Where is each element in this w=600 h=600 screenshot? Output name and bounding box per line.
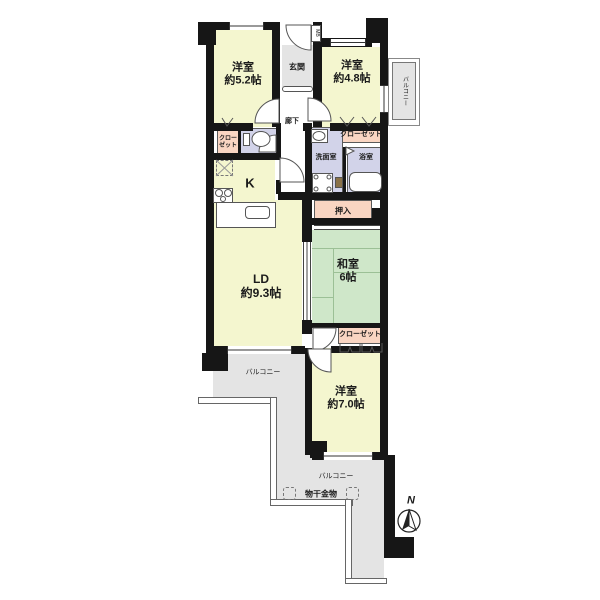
room-name: LD [241, 273, 282, 287]
sliding-door-oshiire [314, 225, 380, 230]
wall [213, 123, 253, 131]
genkan-label: 玄関 [289, 62, 305, 71]
wall [343, 147, 346, 196]
wall [305, 323, 388, 328]
wall [330, 123, 388, 131]
closet-lower-label: クローゼット [339, 331, 381, 339]
stove [213, 188, 233, 203]
window [229, 22, 264, 30]
washroom-label: 洗面室 [316, 154, 337, 162]
room-size: 約9.3帖 [241, 287, 282, 301]
wall [272, 22, 280, 127]
window [227, 346, 292, 354]
closet-left-label: クローゼット [218, 136, 238, 150]
laundry-label: 物干金物 [305, 489, 337, 498]
ld-label: LD 約9.3帖 [241, 273, 282, 301]
room-size: 約4.8帖 [333, 72, 370, 85]
tatami-line [312, 297, 333, 298]
room-name: 和室 [337, 258, 359, 271]
hallway-label: 廊下 [285, 118, 299, 126]
balcony-railing [270, 397, 277, 501]
bathroom-label: 浴室 [359, 154, 373, 162]
balcony-left-strip [277, 398, 305, 458]
compass-label: N [407, 495, 415, 508]
room-size: 6帖 [337, 271, 359, 284]
wall [308, 192, 388, 200]
balcony-railing [198, 397, 277, 404]
toilet-tank [243, 133, 250, 146]
bathtub [349, 172, 382, 192]
balcony-left-label: バルコニー [246, 369, 281, 377]
window [380, 85, 388, 113]
bedroom-4-8-label: 洋室 約4.8帖 [333, 59, 370, 84]
wash-basin [311, 129, 328, 143]
refrigerator-space [216, 160, 233, 176]
wall [305, 348, 312, 455]
meter-box-label: MB [313, 29, 319, 37]
wall [372, 208, 388, 224]
room-name: 洋室 [333, 59, 370, 72]
bedroom-5-2-label: 洋室 約5.2帖 [224, 61, 261, 86]
balcony-railing [270, 499, 353, 506]
room-size: 約5.2帖 [224, 74, 261, 87]
balcony-bottom-strip [352, 501, 384, 583]
washing-machine [312, 173, 333, 193]
window [323, 452, 373, 460]
balcony-bottom-label: バルコニー [319, 473, 354, 481]
laundry-fitting-mark [283, 487, 296, 500]
washitsu-label: 和室 6帖 [337, 258, 359, 283]
utility-box [335, 177, 343, 188]
balcony-railing [345, 499, 352, 583]
kitchen-sink [245, 206, 270, 219]
wall [292, 346, 305, 354]
oshiire-label: 押入 [335, 206, 351, 215]
closet-upper-label: クローゼット [340, 131, 382, 139]
laundry-fitting-mark [346, 487, 359, 500]
genkan-step [282, 86, 313, 92]
tatami-line [333, 248, 334, 323]
tatami-line [312, 248, 385, 249]
kitchen-label: K [245, 177, 254, 192]
room-name: 洋室 [327, 385, 364, 398]
balcony-railing [345, 578, 387, 584]
door-arc-hall-ld [280, 158, 304, 182]
window [330, 39, 366, 46]
wall [384, 537, 414, 558]
room-name: 洋室 [224, 61, 261, 74]
wall [312, 452, 323, 460]
wall [211, 153, 281, 160]
sliding-door-washitsu [303, 242, 311, 320]
room-size: 約7.0帖 [327, 398, 364, 411]
compass-icon [398, 509, 420, 532]
balcony-right-label: バルコニー [401, 76, 408, 106]
bedroom-7-0-label: 洋室 約7.0帖 [327, 385, 364, 410]
wall [331, 346, 385, 353]
floor-plan: 洋室 約5.2帖 玄関 MB 洋室 約4.8帖 バルコニー クローゼット 廊下 … [0, 0, 600, 600]
wall [202, 353, 228, 371]
